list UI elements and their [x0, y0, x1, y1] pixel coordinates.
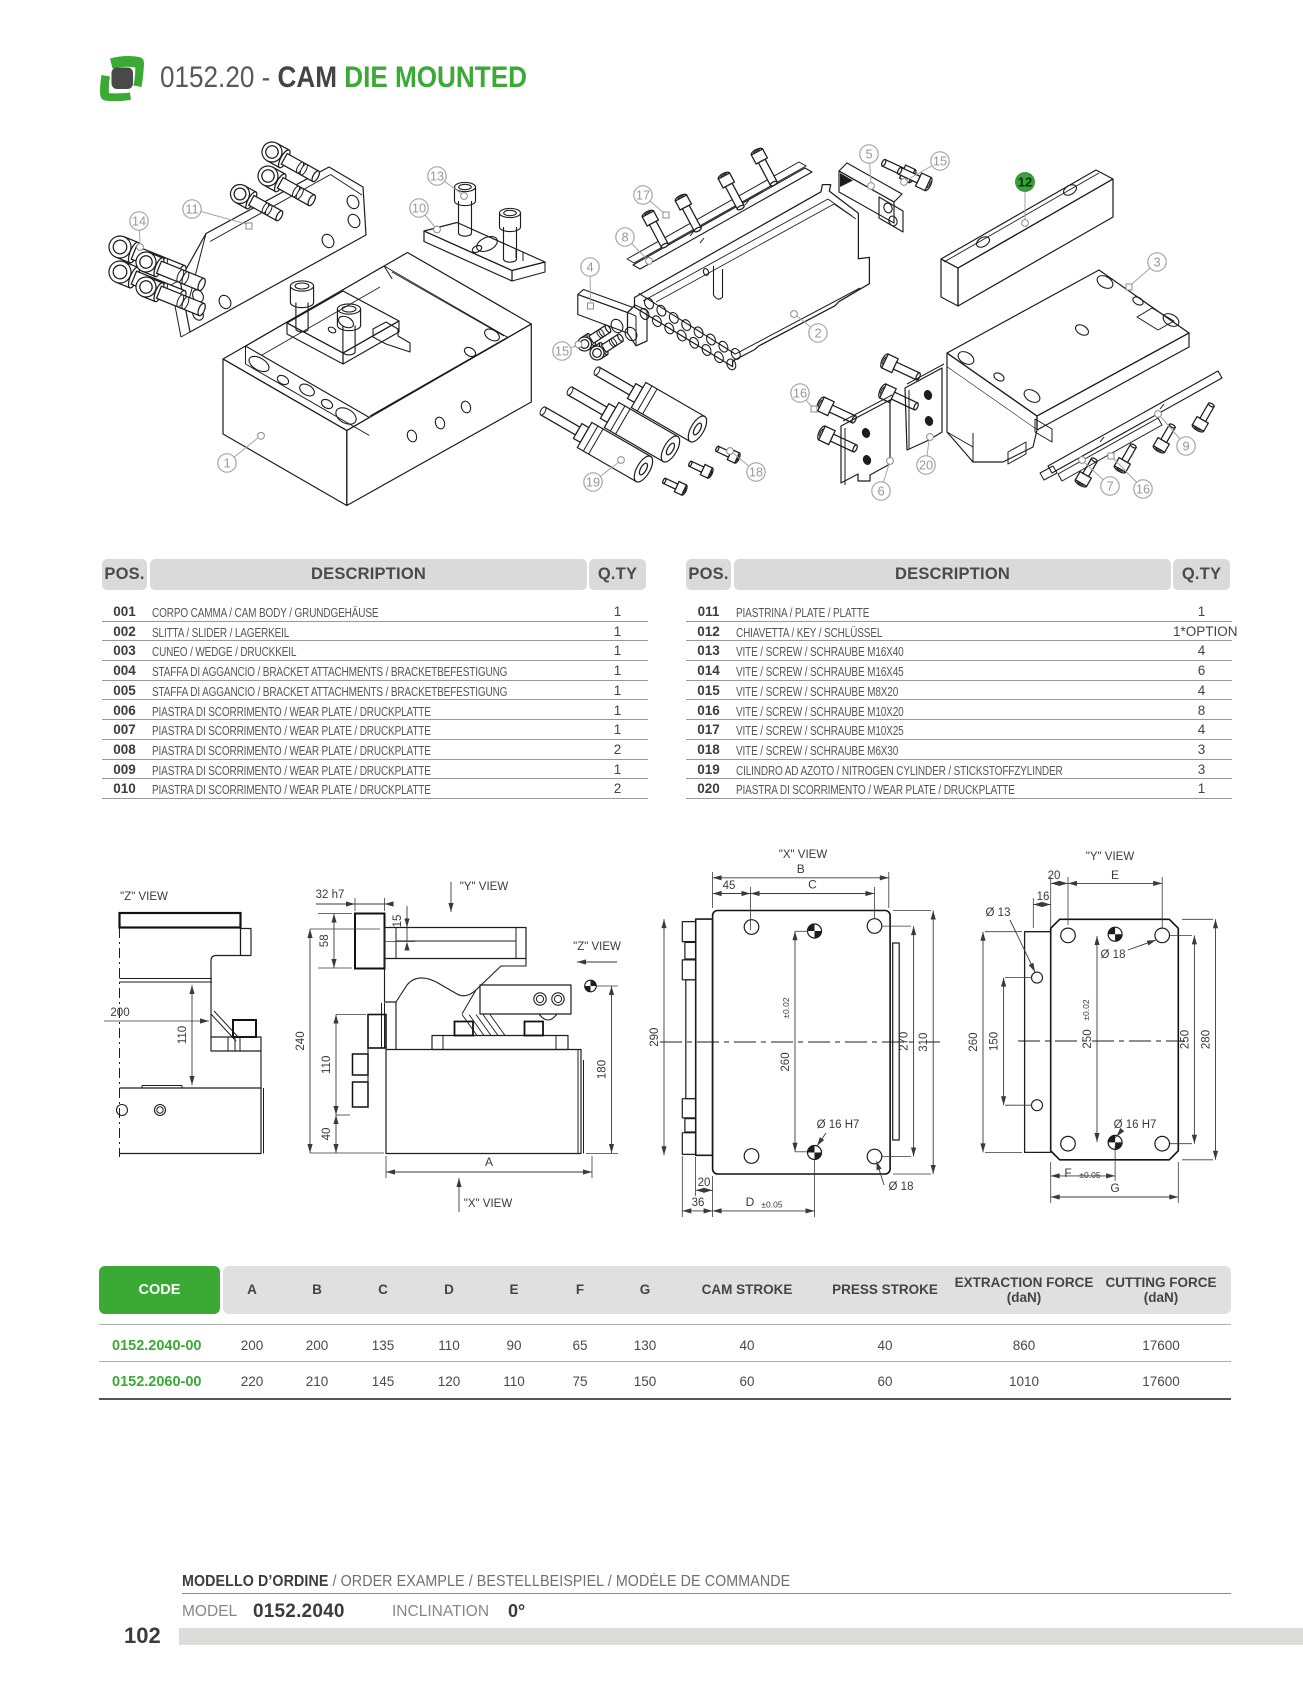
svg-text:200: 200	[110, 1007, 129, 1019]
svg-text:±0.05: ±0.05	[1079, 1170, 1100, 1180]
svg-text:Ø 13: Ø 13	[986, 907, 1011, 919]
svg-text:5: 5	[865, 147, 872, 162]
svg-text:"Z" VIEW: "Z" VIEW	[573, 941, 621, 953]
svg-text:13: 13	[430, 169, 444, 184]
svg-text:B: B	[797, 862, 805, 876]
svg-text:15: 15	[555, 344, 569, 359]
svg-text:20: 20	[1048, 870, 1061, 882]
svg-text:250: 250	[1082, 1029, 1094, 1048]
svg-text:Ø 18: Ø 18	[1101, 949, 1126, 961]
svg-text:150: 150	[989, 1032, 1001, 1051]
svg-text:32 h7: 32 h7	[316, 889, 345, 901]
svg-text:14: 14	[132, 214, 146, 229]
svg-text:7: 7	[1106, 479, 1113, 494]
svg-text:Ø 18: Ø 18	[889, 1181, 914, 1193]
svg-text:F: F	[1064, 1166, 1071, 1180]
svg-text:2: 2	[814, 326, 821, 341]
svg-text:260: 260	[968, 1033, 980, 1052]
svg-text:20: 20	[919, 458, 933, 473]
svg-text:D: D	[746, 1195, 755, 1209]
svg-text:18: 18	[749, 465, 763, 480]
svg-text:"Y" VIEW: "Y" VIEW	[460, 881, 509, 893]
svg-text:±0.02: ±0.02	[1081, 999, 1091, 1020]
svg-text:110: 110	[321, 1056, 333, 1074]
svg-text:270: 270	[899, 1032, 911, 1051]
svg-text:16: 16	[793, 386, 807, 401]
svg-text:C: C	[808, 878, 817, 892]
svg-text:36: 36	[692, 1197, 705, 1209]
svg-text:12: 12	[1018, 175, 1032, 190]
svg-text:19: 19	[586, 475, 600, 490]
svg-text:40: 40	[321, 1128, 333, 1141]
svg-text:16: 16	[1037, 891, 1050, 903]
svg-text:A: A	[485, 1155, 493, 1169]
svg-text:4: 4	[586, 260, 593, 275]
svg-text:6: 6	[877, 484, 884, 499]
svg-text:3: 3	[1153, 255, 1160, 270]
svg-text:11: 11	[185, 202, 198, 217]
svg-text:110: 110	[177, 1026, 189, 1044]
svg-text:±0.02: ±0.02	[781, 997, 791, 1018]
svg-text:"Y" VIEW: "Y" VIEW	[1086, 851, 1135, 863]
svg-text:±0.05: ±0.05	[761, 1200, 782, 1210]
svg-text:15: 15	[392, 915, 404, 928]
svg-text:15: 15	[933, 154, 947, 169]
svg-text:17: 17	[636, 188, 650, 203]
svg-text:290: 290	[649, 1028, 661, 1047]
svg-text:"X" VIEW: "X" VIEW	[464, 1198, 513, 1210]
svg-text:"X" VIEW: "X" VIEW	[779, 849, 828, 861]
svg-text:45: 45	[723, 880, 736, 892]
svg-text:"Z" VIEW: "Z" VIEW	[120, 891, 168, 903]
svg-text:20: 20	[698, 1177, 711, 1189]
svg-text:G: G	[1110, 1181, 1119, 1195]
svg-text:240: 240	[295, 1031, 307, 1050]
svg-text:310: 310	[918, 1033, 930, 1052]
svg-text:E: E	[1111, 868, 1119, 882]
svg-text:10: 10	[412, 201, 426, 216]
svg-text:260: 260	[780, 1052, 792, 1071]
svg-text:180: 180	[597, 1060, 609, 1079]
svg-text:250: 250	[1179, 1030, 1191, 1049]
svg-text:Ø 16 H7: Ø 16 H7	[817, 1119, 860, 1131]
svg-text:58: 58	[319, 934, 331, 947]
svg-text:8: 8	[621, 230, 628, 245]
svg-text:1: 1	[223, 456, 230, 471]
svg-text:280: 280	[1201, 1030, 1213, 1049]
svg-text:9: 9	[1182, 439, 1189, 454]
svg-text:16: 16	[1136, 482, 1150, 497]
